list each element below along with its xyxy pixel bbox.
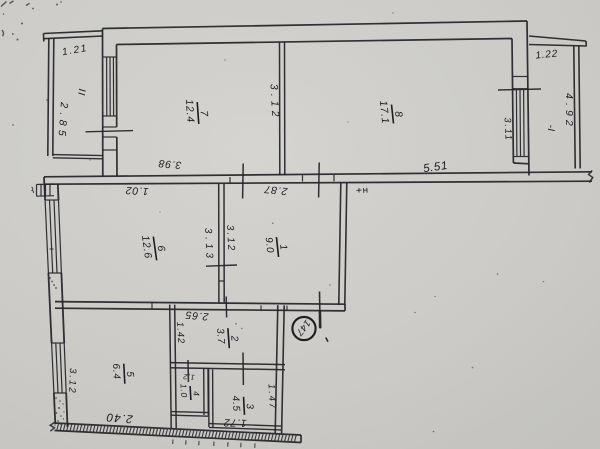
svg-text:3.7: 3.7 [214,328,226,345]
svg-text:12.4: 12.4 [183,99,197,123]
svg-text:4: 4 [191,391,201,397]
svg-text:5: 5 [124,371,135,378]
svg-text:1.47: 1.47 [266,384,278,411]
svg-text:1: 1 [277,244,289,251]
svg-text:4.92: 4.92 [563,93,575,130]
svg-text:1.42: 1.42 [174,322,186,345]
svg-text:1.02: 1.02 [125,184,149,197]
svg-text:2.65: 2.65 [184,308,210,322]
svg-text:1.0: 1.0 [179,383,190,398]
svg-text:3.98: 3.98 [157,157,182,171]
svg-text:2.40: 2.40 [105,410,134,424]
svg-text:6.4: 6.4 [110,363,122,380]
svg-text:3.12: 3.12 [268,84,282,121]
svg-text:3.12: 3.12 [66,368,78,395]
svg-text:3: 3 [244,403,255,410]
svg-text:8: 8 [392,111,405,119]
svg-text:II: II [75,88,87,97]
svg-text:3.12: 3.12 [224,225,236,253]
svg-text:9.0: 9.0 [263,237,276,254]
svg-text:17.1: 17.1 [377,100,391,125]
svg-text:-I: -I [545,124,556,131]
svg-text:2: 2 [228,334,239,342]
svg-text:3.13: 3.13 [202,228,215,262]
svg-text:3.11: 3.11 [502,117,514,142]
svg-text:1,2: 1,2 [182,372,195,382]
svg-text:4.5: 4.5 [230,395,242,412]
svg-text:1.22: 1.22 [535,48,559,61]
svg-text:1.72: 1.72 [223,416,247,429]
